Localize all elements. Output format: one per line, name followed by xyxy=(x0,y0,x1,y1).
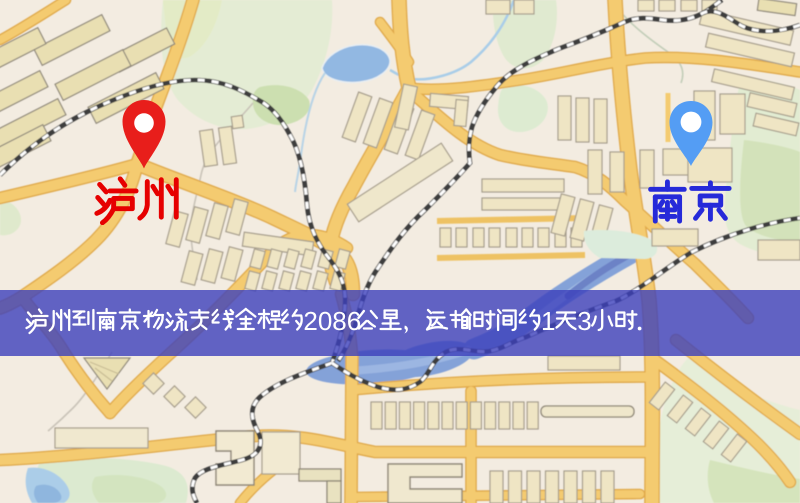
svg-text:1: 1 xyxy=(541,306,555,336)
svg-text:3: 3 xyxy=(577,306,591,336)
svg-text:2086: 2086 xyxy=(303,306,361,336)
